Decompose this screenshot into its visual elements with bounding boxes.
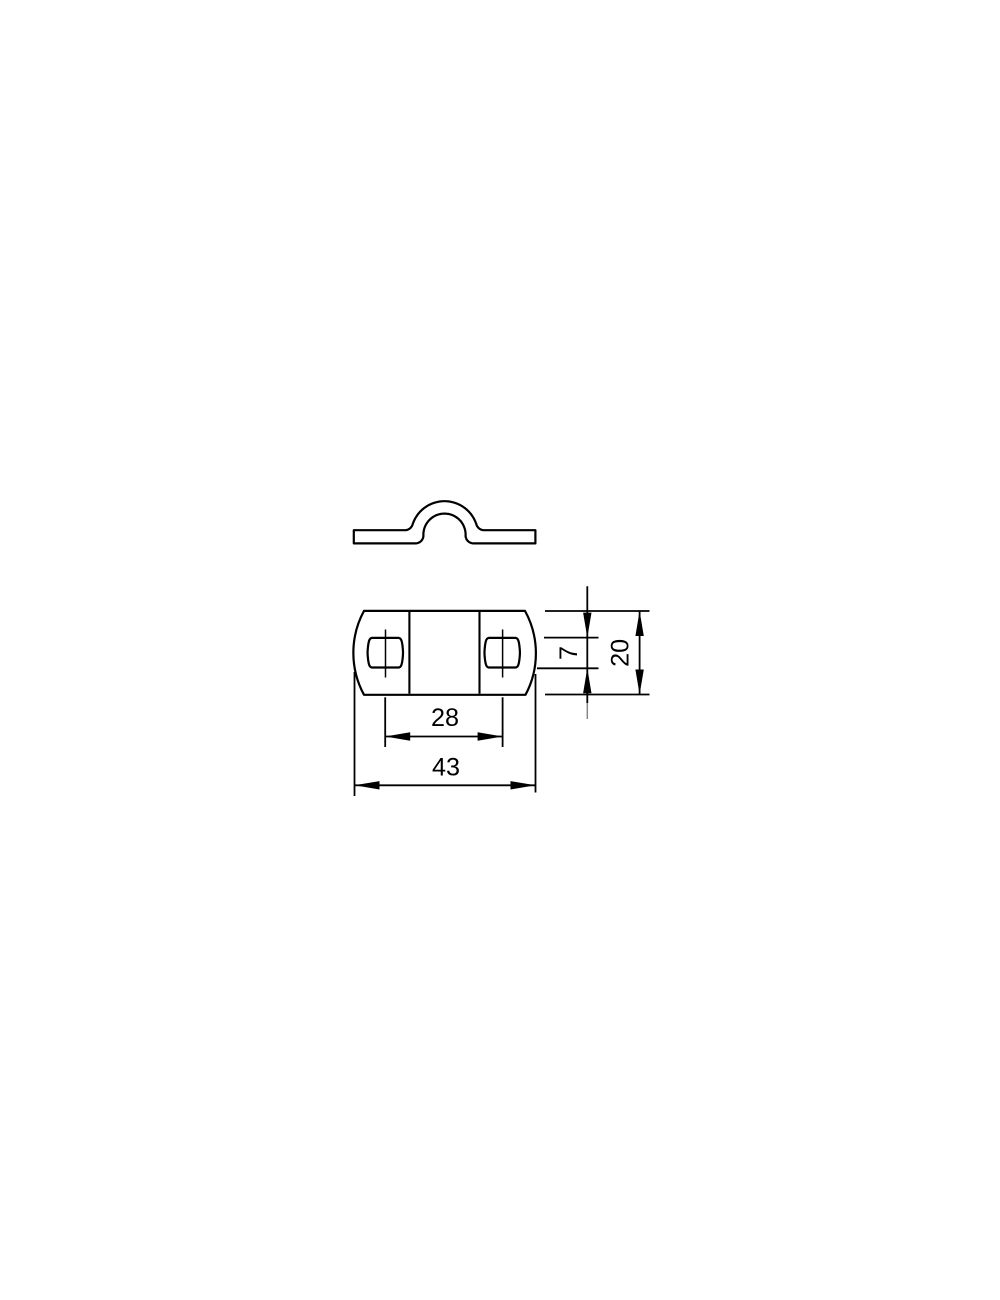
svg-text:7: 7 bbox=[555, 646, 583, 660]
svg-text:43: 43 bbox=[432, 753, 460, 781]
svg-text:20: 20 bbox=[607, 639, 635, 667]
svg-text:28: 28 bbox=[431, 704, 459, 732]
